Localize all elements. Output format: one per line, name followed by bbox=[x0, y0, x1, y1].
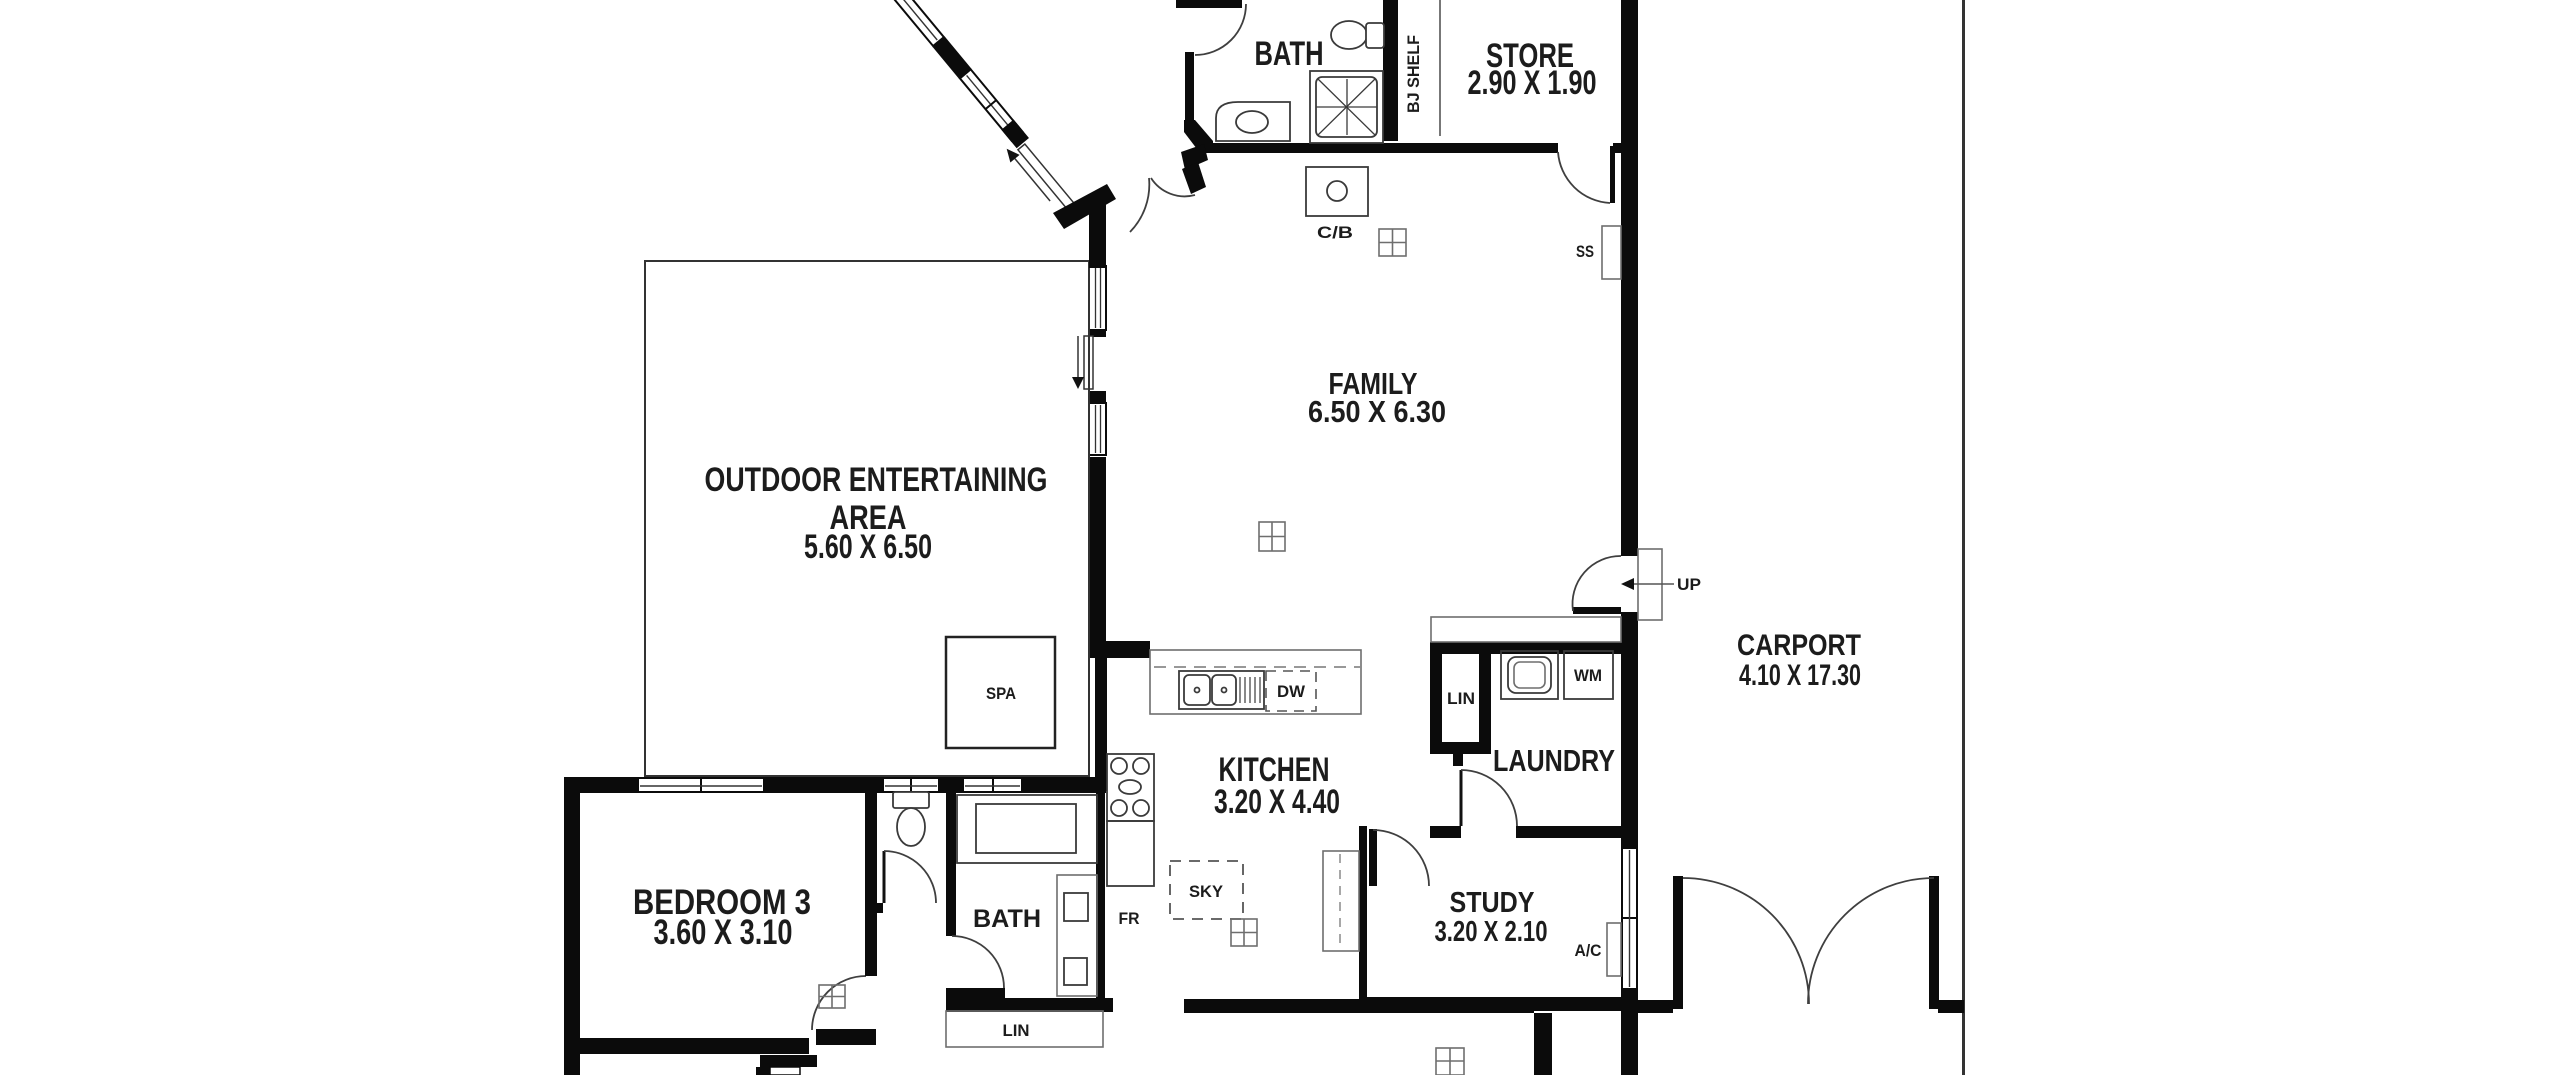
svg-text:BATH: BATH bbox=[1255, 35, 1324, 73]
svg-text:2.90 X 1.90: 2.90 X 1.90 bbox=[1468, 64, 1597, 102]
svg-text:BJ SHELF: BJ SHELF bbox=[1404, 35, 1423, 113]
svg-text:6.50 X 6.30: 6.50 X 6.30 bbox=[1308, 394, 1446, 429]
svg-text:OUTDOOR ENTERTAINING: OUTDOOR ENTERTAINING bbox=[705, 461, 1048, 499]
svg-text:3.60 X 3.10: 3.60 X 3.10 bbox=[654, 913, 793, 952]
svg-text:DW: DW bbox=[1277, 683, 1305, 701]
svg-text:SS: SS bbox=[1576, 243, 1594, 261]
svg-text:STUDY: STUDY bbox=[1450, 887, 1535, 919]
svg-text:BATH: BATH bbox=[973, 905, 1041, 933]
svg-text:LIN: LIN bbox=[1003, 1022, 1030, 1040]
svg-text:SPA: SPA bbox=[986, 685, 1016, 703]
svg-text:4.10 X 17.30: 4.10 X 17.30 bbox=[1739, 659, 1861, 692]
svg-text:UP: UP bbox=[1677, 576, 1701, 594]
svg-text:SKY: SKY bbox=[1189, 883, 1223, 901]
svg-text:3.20 X 4.40: 3.20 X 4.40 bbox=[1214, 783, 1340, 821]
svg-text:LIN: LIN bbox=[1447, 690, 1475, 708]
svg-text:A/C: A/C bbox=[1575, 942, 1602, 960]
svg-text:LAUNDRY: LAUNDRY bbox=[1493, 743, 1615, 778]
svg-text:3.20 X 2.10: 3.20 X 2.10 bbox=[1435, 916, 1548, 948]
svg-text:FR: FR bbox=[1119, 910, 1140, 928]
svg-text:5.60 X 6.50: 5.60 X 6.50 bbox=[804, 528, 932, 566]
svg-text:CARPORT: CARPORT bbox=[1737, 629, 1861, 662]
svg-text:C/B: C/B bbox=[1317, 224, 1353, 242]
svg-text:WM: WM bbox=[1574, 667, 1602, 685]
